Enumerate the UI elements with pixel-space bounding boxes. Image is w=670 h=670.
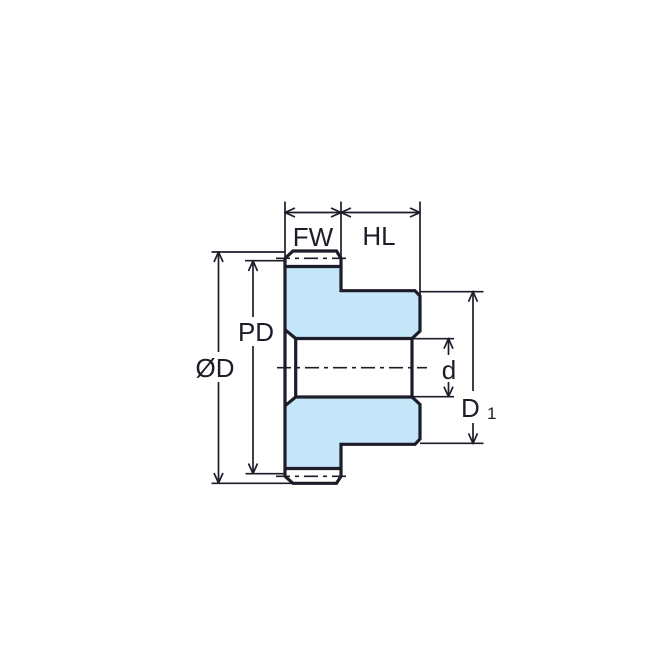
d1-label-subscript: 1 (487, 404, 496, 423)
od-label: ØD (196, 353, 235, 383)
dimension-d1: D 1 (420, 292, 496, 444)
hl-label: HL (362, 221, 395, 251)
gear-lower-section-fill (285, 397, 420, 469)
gear-upper-section-fill (285, 267, 420, 339)
d1-label-main: D (461, 393, 480, 423)
fw-label: FW (293, 222, 334, 252)
diagram-svg: FW HL ØD PD d D 1 (0, 0, 670, 670)
gear-dimension-diagram: FW HL ØD PD d D 1 (0, 0, 670, 670)
pd-label: PD (238, 317, 274, 347)
d-label: d (442, 355, 456, 385)
